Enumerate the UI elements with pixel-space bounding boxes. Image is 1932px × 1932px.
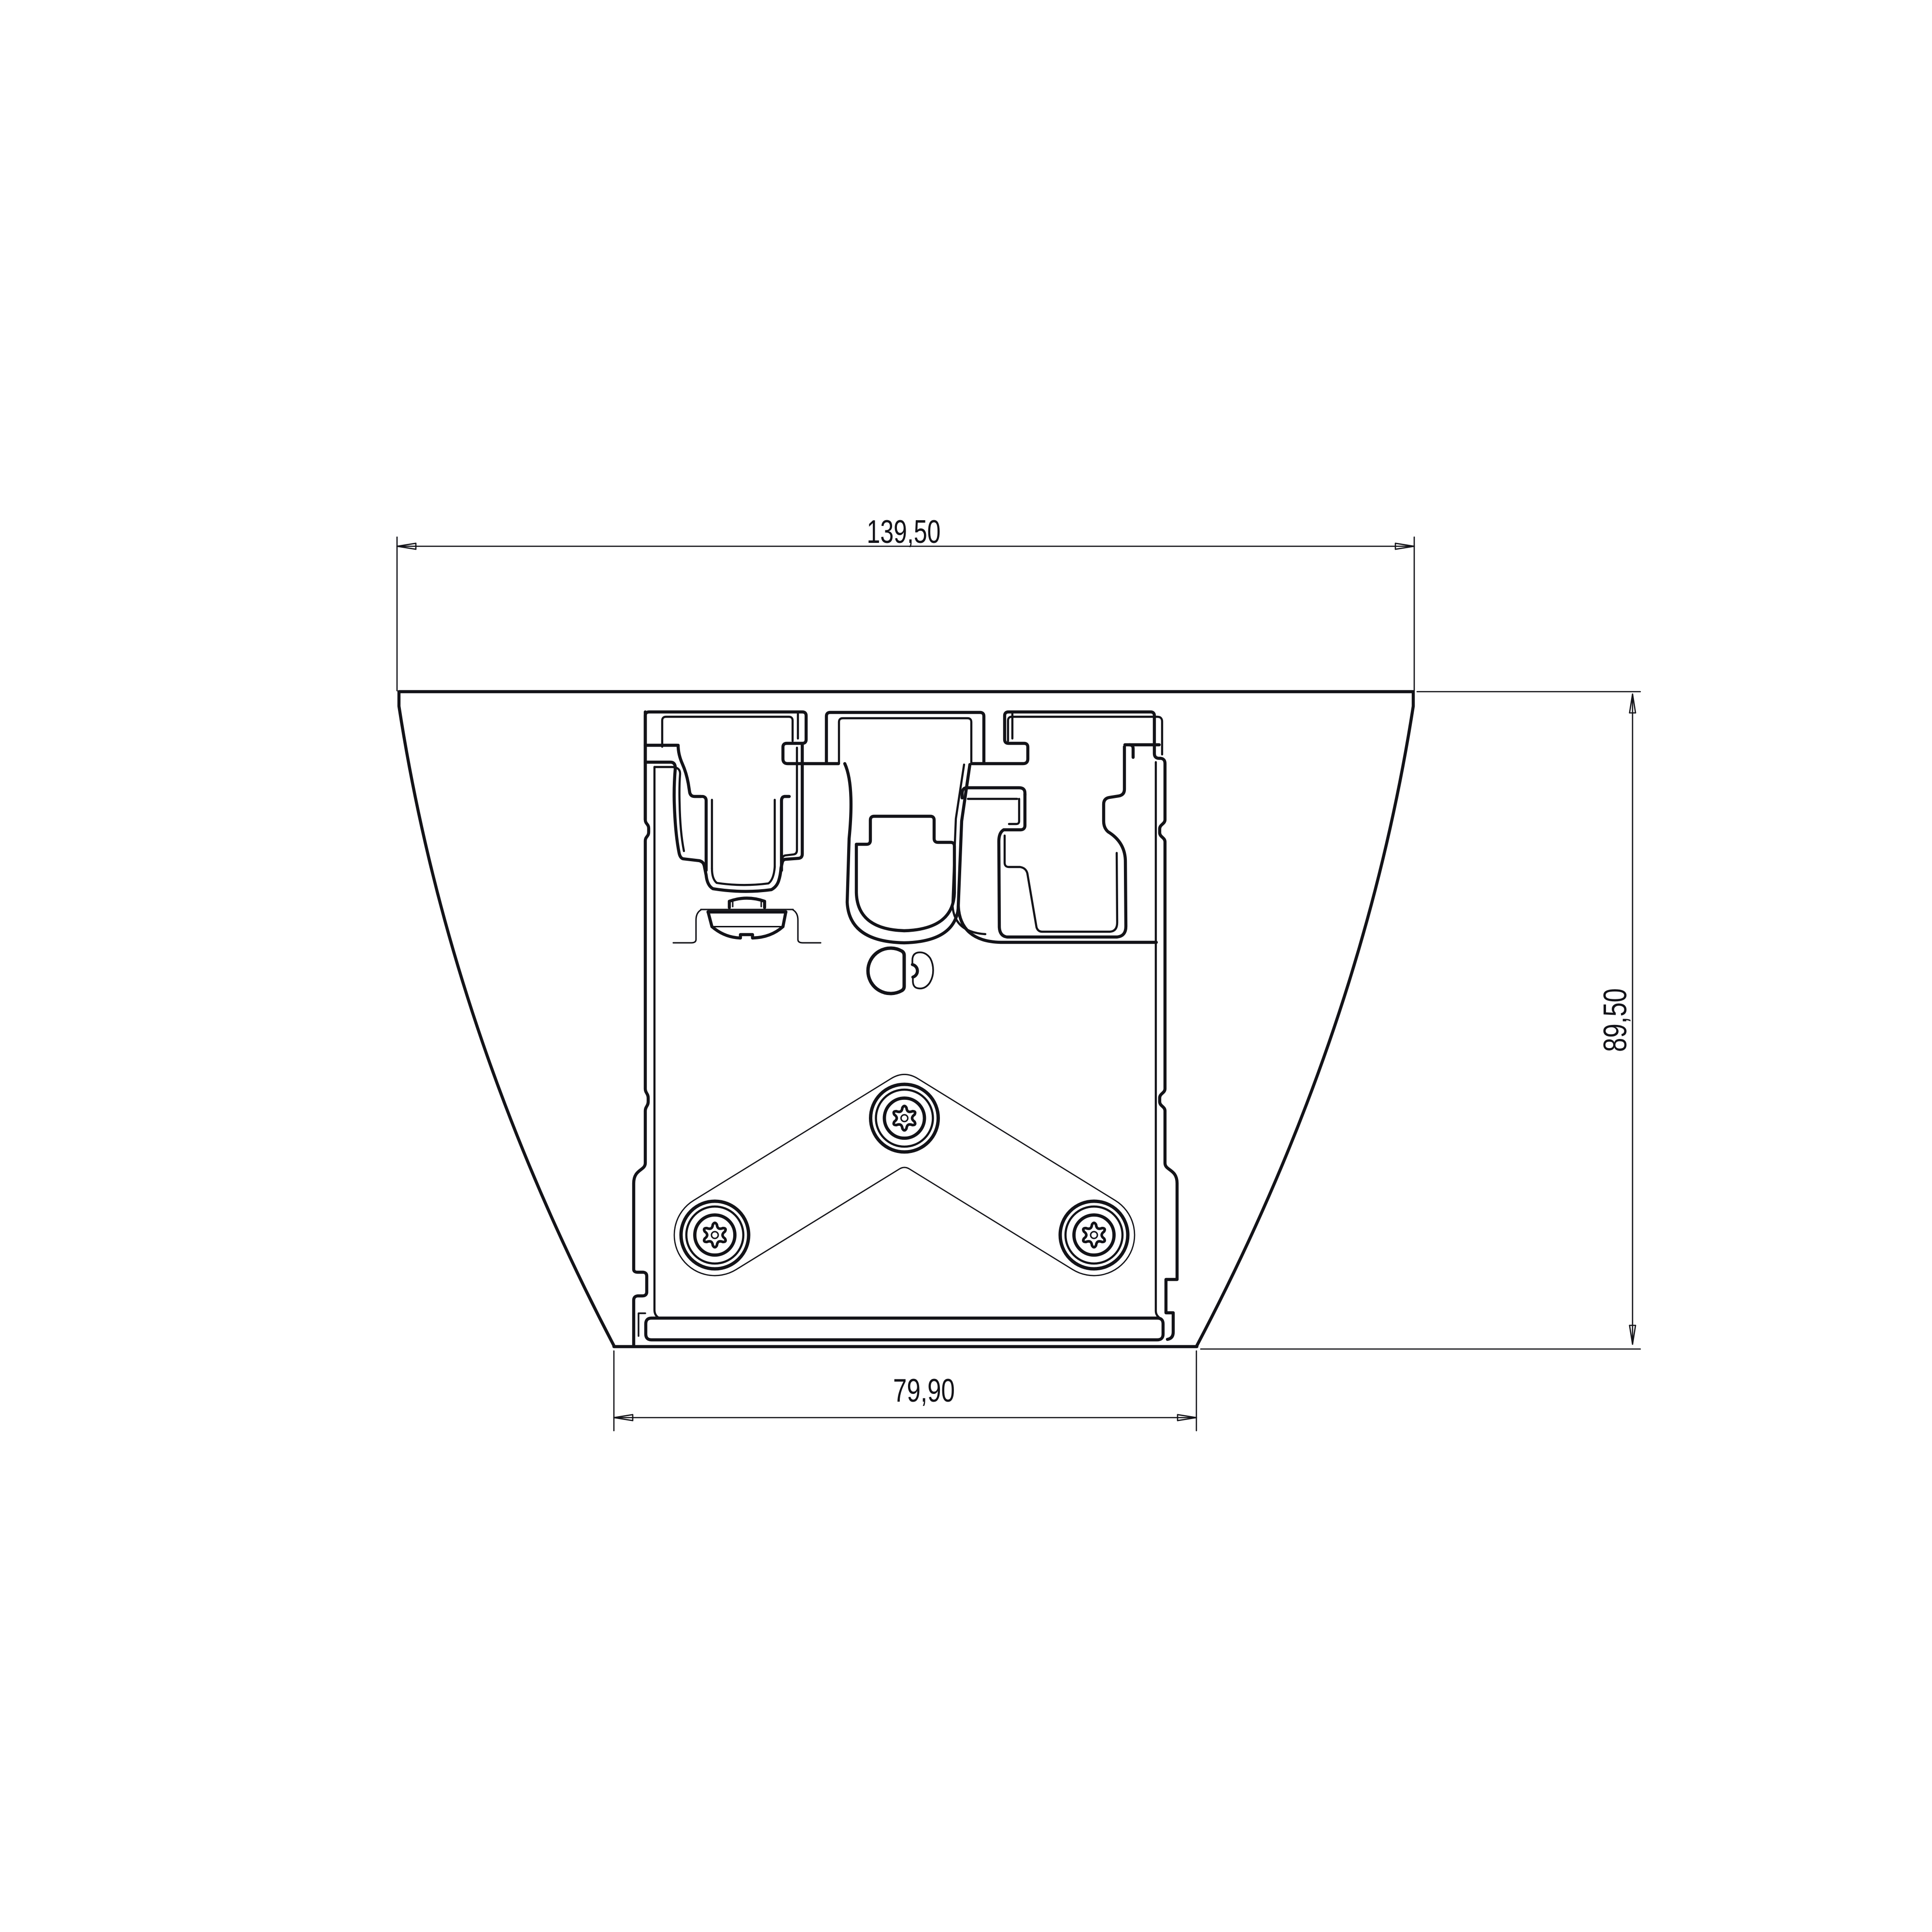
svg-text:139,50: 139,50 [867, 513, 941, 550]
svg-text:79,90: 79,90 [893, 1372, 955, 1409]
svg-text:89,50: 89,50 [1597, 988, 1634, 1052]
